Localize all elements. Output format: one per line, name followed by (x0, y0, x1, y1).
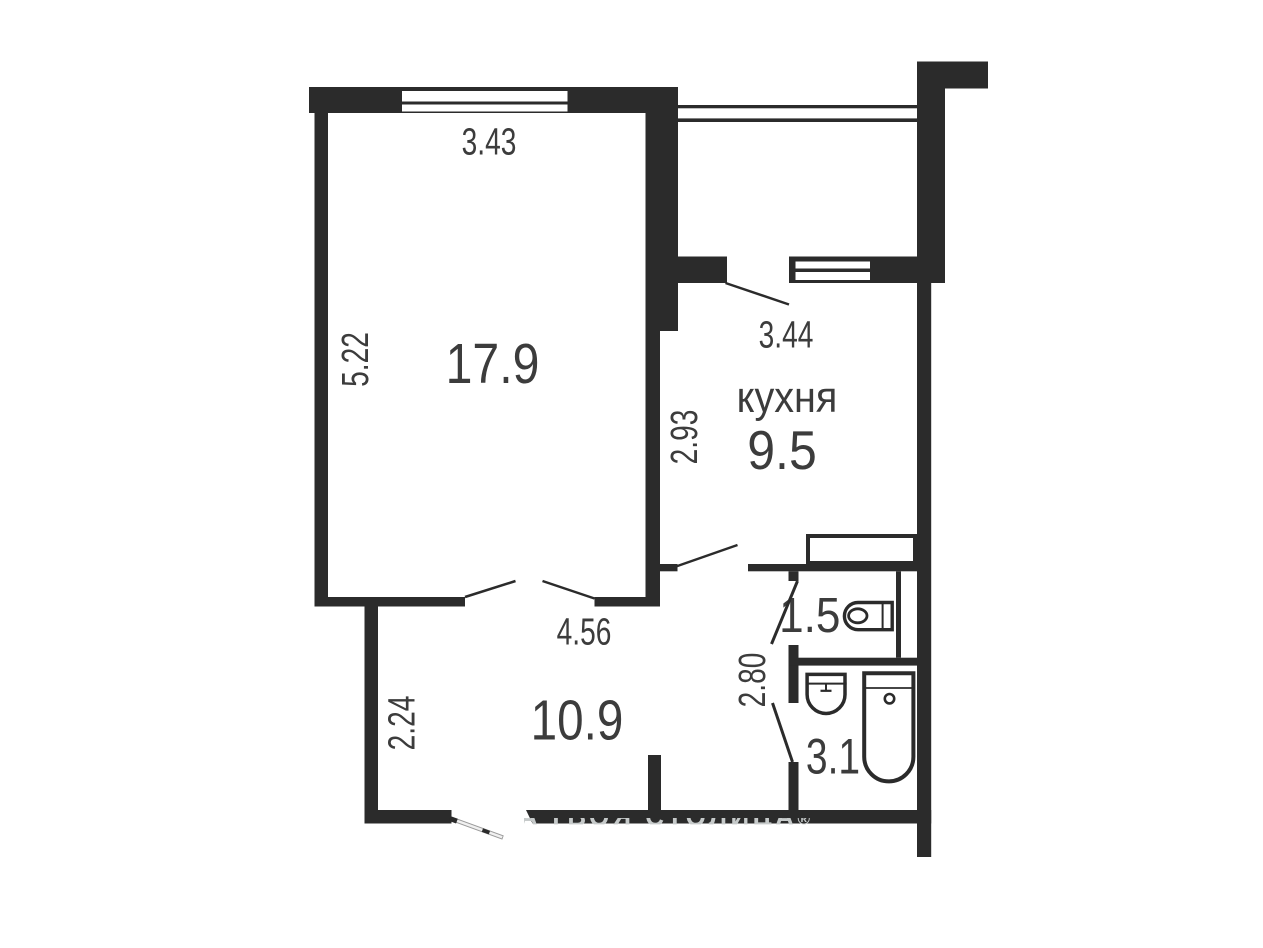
svg-text:2.80: 2.80 (732, 653, 774, 708)
svg-text:3.43: 3.43 (462, 122, 517, 164)
svg-text:2.24: 2.24 (382, 696, 424, 751)
svg-text:17.9: 17.9 (446, 332, 540, 396)
svg-text:5.22: 5.22 (335, 332, 377, 387)
svg-text:кухня: кухня (737, 372, 838, 421)
svg-text:10.9: 10.9 (531, 689, 624, 752)
svg-text:9.5: 9.5 (747, 420, 817, 482)
svg-text:2.93: 2.93 (664, 410, 706, 465)
svg-text:3.1: 3.1 (806, 728, 860, 785)
svg-text:3.44: 3.44 (759, 315, 814, 357)
svg-text:1.5: 1.5 (779, 588, 840, 643)
svg-text:4.56: 4.56 (557, 612, 612, 654)
